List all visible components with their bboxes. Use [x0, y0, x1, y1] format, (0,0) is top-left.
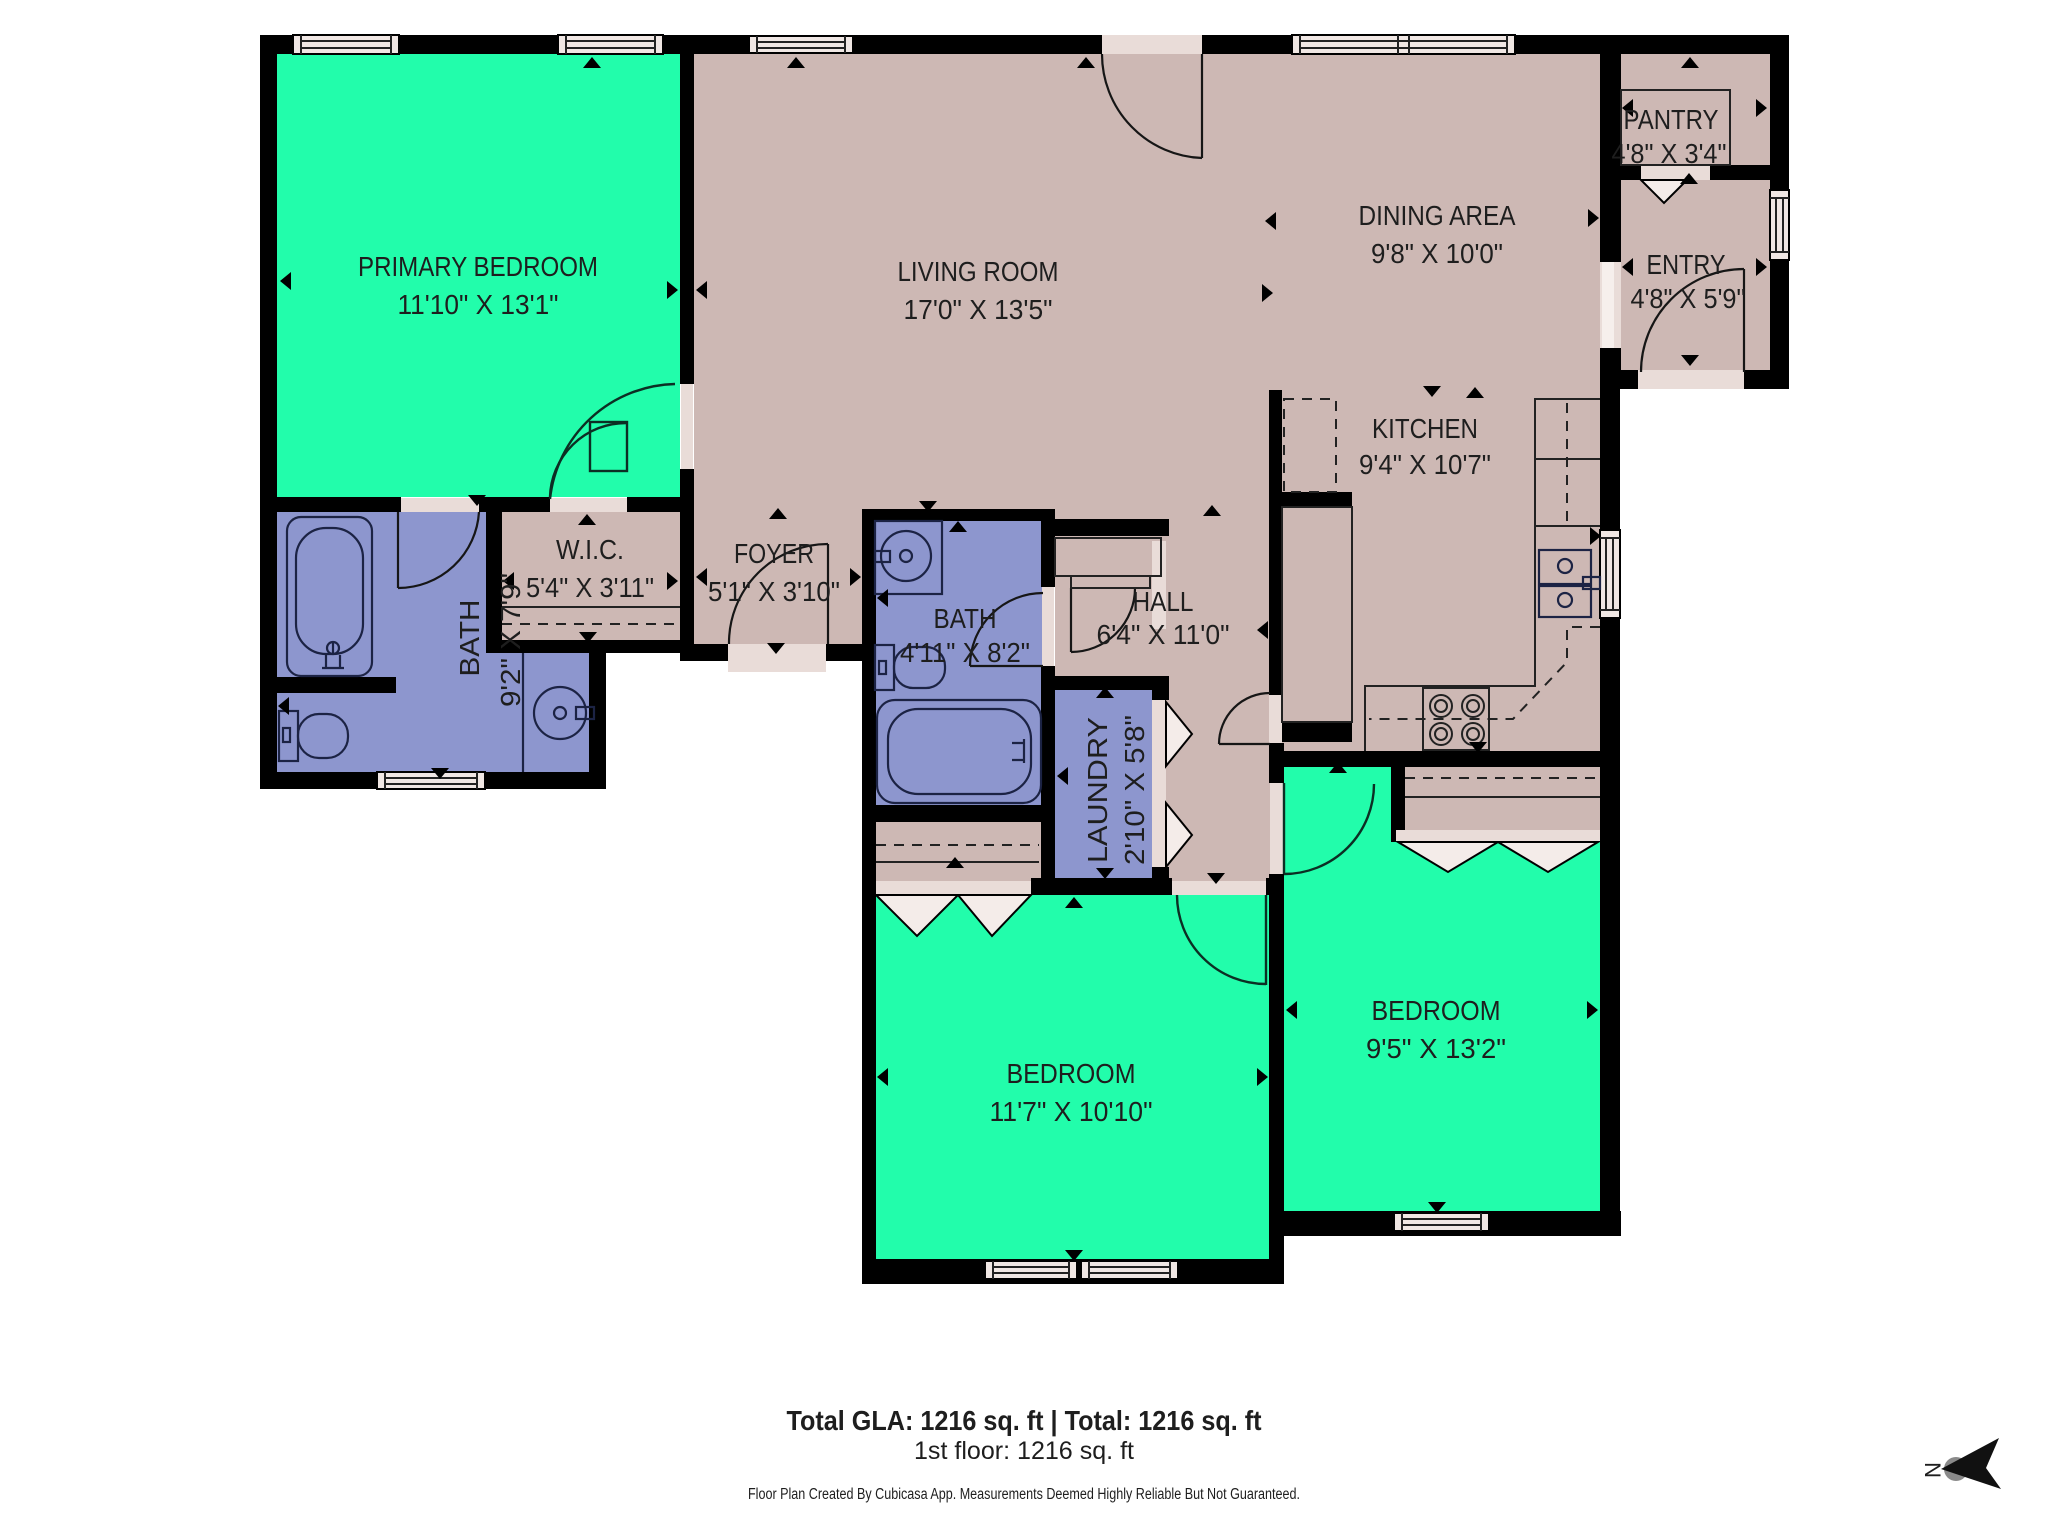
svg-text:KITCHEN: KITCHEN [1372, 413, 1478, 444]
svg-text:4'11" X 8'2": 4'11" X 8'2" [900, 637, 1030, 668]
svg-text:HALL: HALL [1133, 586, 1194, 617]
svg-text:4'8" X 5'9": 4'8" X 5'9" [1631, 283, 1746, 314]
svg-text:PRIMARY BEDROOM: PRIMARY BEDROOM [358, 251, 598, 282]
svg-text:17'0" X 13'5": 17'0" X 13'5" [904, 294, 1053, 325]
svg-text:LIVING ROOM: LIVING ROOM [898, 256, 1059, 287]
svg-text:FOYER: FOYER [734, 538, 814, 569]
svg-text:4'8" X 3'4": 4'8" X 3'4" [1612, 138, 1727, 169]
svg-text:1st floor: 1216 sq. ft: 1st floor: 1216 sq. ft [914, 1437, 1134, 1465]
svg-text:5'1" X 3'10": 5'1" X 3'10" [708, 576, 840, 607]
svg-text:PANTRY: PANTRY [1624, 104, 1719, 135]
svg-text:DINING AREA: DINING AREA [1359, 200, 1516, 231]
svg-text:11'7" X 10'10": 11'7" X 10'10" [990, 1096, 1153, 1127]
svg-text:W.I.C.: W.I.C. [556, 534, 624, 565]
svg-text:LAUNDRY: LAUNDRY [1082, 717, 1113, 863]
svg-text:N: N [1921, 1462, 1946, 1478]
svg-text:2'10" X 5'8": 2'10" X 5'8" [1119, 715, 1150, 865]
svg-text:9'8" X 10'0": 9'8" X 10'0" [1371, 238, 1503, 269]
svg-text:BEDROOM: BEDROOM [1007, 1058, 1136, 1089]
svg-text:6'4" X 11'0": 6'4" X 11'0" [1097, 619, 1230, 650]
svg-text:11'10" X 13'1": 11'10" X 13'1" [398, 289, 559, 320]
svg-text:BATH: BATH [934, 603, 997, 634]
svg-text:5'4" X 3'11": 5'4" X 3'11" [526, 572, 654, 603]
svg-text:9'5" X 13'2": 9'5" X 13'2" [1366, 1033, 1506, 1064]
svg-text:9'4" X 10'7": 9'4" X 10'7" [1359, 449, 1491, 480]
svg-text:ENTRY: ENTRY [1647, 249, 1726, 280]
svg-text:Floor Plan Created By Cubicasa: Floor Plan Created By Cubicasa App. Meas… [748, 1486, 1300, 1503]
svg-text:BEDROOM: BEDROOM [1372, 995, 1501, 1026]
svg-text:Total GLA: 1216 sq. ft | Total: Total GLA: 1216 sq. ft | Total: 1216 sq.… [787, 1405, 1262, 1436]
svg-text:9'2" X 7'9": 9'2" X 7'9" [495, 573, 526, 707]
svg-text:BATH: BATH [454, 600, 485, 677]
